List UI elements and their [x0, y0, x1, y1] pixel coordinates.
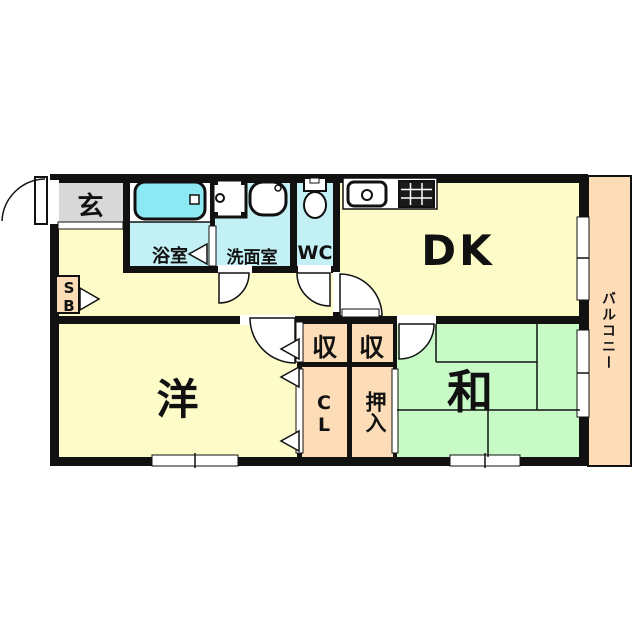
balcony-label: バルコニー	[594, 246, 618, 416]
wc-label: WC	[294, 242, 336, 264]
wall-middle-horizontal	[58, 316, 580, 324]
wall-entrance-bath	[123, 174, 130, 273]
japanese-room-label: 和	[430, 356, 510, 422]
entrance-label: 玄	[58, 186, 123, 223]
dk-label: DK	[408, 226, 508, 275]
western-room-label: 洋	[120, 366, 235, 427]
storage-left-label: 収	[302, 328, 347, 364]
dk-door-opening	[333, 272, 340, 312]
bath-label: 浴室	[130, 242, 210, 268]
stove-icon	[399, 181, 434, 207]
shoebox-label: SB	[60, 279, 78, 313]
storage-right-label: 収	[350, 328, 393, 364]
wash-basin-icon	[250, 182, 286, 215]
toilet-icon	[304, 178, 326, 218]
bathtub-icon	[135, 182, 205, 219]
washroom-label: 洗面室	[212, 243, 292, 268]
oshiire-label: 押入	[360, 374, 390, 450]
entrance-sill	[58, 222, 123, 229]
floor-plan-drawing	[0, 0, 640, 640]
oshiire-door-panel	[392, 369, 398, 453]
closet-label: CL	[313, 378, 335, 450]
floor-plan: 玄 浴室 洗面室 WC DK バルコニー 洋 和 収 収 CL 押入 SB	[0, 0, 640, 640]
kitchen-sink-icon	[348, 182, 386, 206]
washing-machine-icon	[213, 180, 246, 217]
entrance-door-leaf	[35, 177, 47, 224]
dk-door-leaf	[342, 309, 379, 317]
